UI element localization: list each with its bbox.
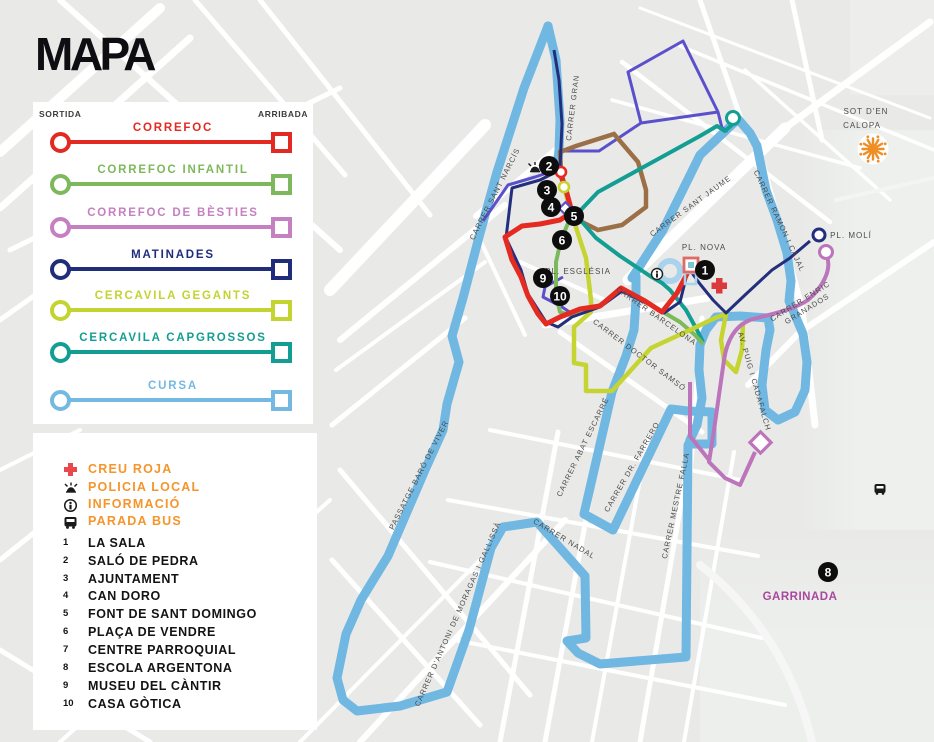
svg-text:2: 2 xyxy=(546,160,553,174)
svg-text:GARRINADA: GARRINADA xyxy=(763,591,838,603)
svg-text:SOT D'EN: SOT D'EN xyxy=(844,107,889,116)
svg-text:CALOPA: CALOPA xyxy=(843,121,881,130)
svg-text:3: 3 xyxy=(544,184,551,198)
svg-text:4: 4 xyxy=(548,201,555,215)
svg-text:10: 10 xyxy=(553,290,567,304)
svg-text:PL. ESGLÉSIA: PL. ESGLÉSIA xyxy=(545,267,611,276)
svg-text:9: 9 xyxy=(540,272,547,286)
svg-text:8: 8 xyxy=(825,566,832,580)
svg-text:1: 1 xyxy=(702,264,709,278)
svg-text:5: 5 xyxy=(571,210,578,224)
svg-text:PL. NOVA: PL. NOVA xyxy=(682,243,726,252)
svg-text:6: 6 xyxy=(559,234,566,248)
svg-text:PL. MOLÍ: PL. MOLÍ xyxy=(830,231,872,240)
